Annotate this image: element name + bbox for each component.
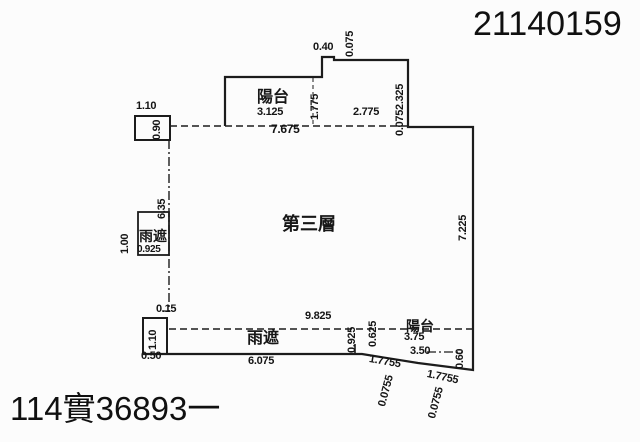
dim-balcony-bottom-width-outer: 3.50 — [410, 346, 430, 357]
dim-balcony-bottom-width-inner: 3.75 — [404, 332, 424, 343]
dim-notch-width: 0.40 — [313, 42, 333, 53]
dim-balcony-top-width: 3.125 — [257, 107, 283, 118]
serial-number-bottom: 114實36893一 — [10, 392, 220, 425]
dim-left-side-height: 6.35 — [157, 199, 168, 219]
dim-top-box-height: 0.90 — [152, 120, 163, 140]
dim-top-right-width: 2.775 — [353, 107, 379, 118]
dim-bottom-shelter-height: 0.925 — [347, 327, 358, 353]
dim-left-shelter-width: 0.925 — [137, 245, 161, 255]
dim-bottom-left-box-width: 0.50 — [141, 351, 161, 362]
survey-document-page: 21140159 114實36893一 陽台 雨遮 第三層 雨遮 陽台 1.10… — [0, 0, 640, 442]
dim-balcony-top-height: 1.775 — [310, 94, 321, 120]
dim-bottom-shelter-width: 6.075 — [248, 356, 274, 367]
dim-balcony-bottom-right-height: 0.60 — [455, 349, 466, 369]
rain-shelter-bottom-label: 雨遮 — [247, 331, 279, 347]
dim-top-right-height: 2.325 — [395, 84, 406, 110]
dim-left-gap: 0.15 — [156, 304, 176, 315]
dim-top-total-width: 7.675 — [271, 123, 300, 135]
dim-right-side-height: 7.225 — [458, 215, 469, 241]
balcony-top-label: 陽台 — [257, 90, 289, 106]
rain-shelter-left-label: 雨遮 — [139, 229, 167, 243]
dim-top-box-width: 1.10 — [136, 101, 156, 112]
serial-number-top: 21140159 — [473, 7, 622, 41]
dim-bottom-total-width: 9.825 — [305, 311, 331, 322]
dim-bottom-left-box-height: 1.10 — [148, 330, 159, 350]
dim-top-right-offset: 0.075 — [395, 110, 406, 136]
dim-left-shelter-height: 1.00 — [120, 234, 131, 254]
dim-notch-height: 0.075 — [345, 31, 356, 57]
floor-label: 第三層 — [282, 215, 336, 233]
dim-balcony-bottom-height: 0.625 — [368, 321, 379, 347]
